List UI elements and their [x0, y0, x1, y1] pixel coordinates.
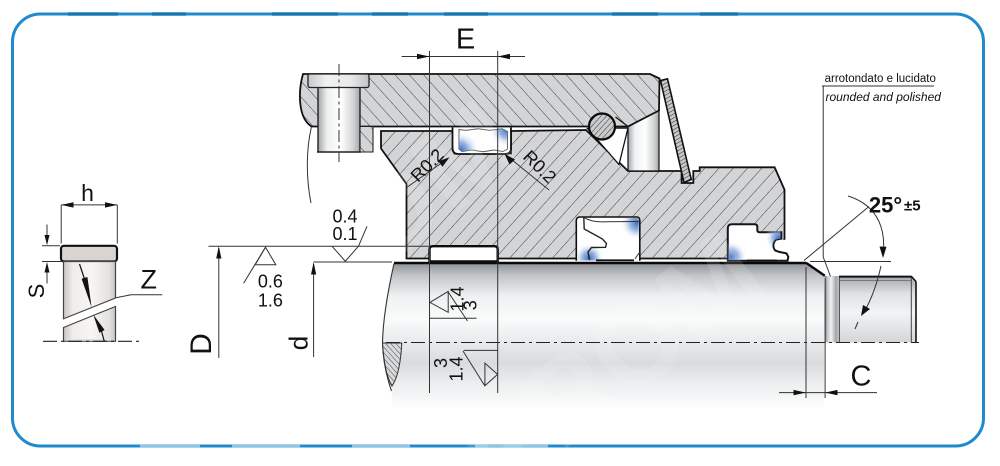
svg-text:h: h	[81, 180, 94, 206]
svg-text:1.4: 1.4	[446, 356, 466, 381]
svg-text:E: E	[456, 23, 475, 55]
svg-text:D: D	[185, 333, 218, 355]
svg-text:0.1: 0.1	[332, 224, 357, 244]
svg-text:Z: Z	[141, 265, 158, 295]
svg-text:d: d	[283, 336, 313, 350]
svg-text:3: 3	[460, 300, 480, 310]
svg-text:1.6: 1.6	[258, 291, 283, 311]
svg-text:rounded and polished: rounded and polished	[826, 90, 942, 104]
svg-text:±5: ±5	[904, 197, 921, 214]
svg-text:C: C	[851, 361, 872, 393]
svg-text:S: S	[24, 284, 49, 299]
svg-text:arrotondato e lucidato: arrotondato e lucidato	[825, 73, 936, 85]
svg-text:0.6: 0.6	[258, 272, 283, 292]
svg-text:25°: 25°	[869, 193, 902, 218]
